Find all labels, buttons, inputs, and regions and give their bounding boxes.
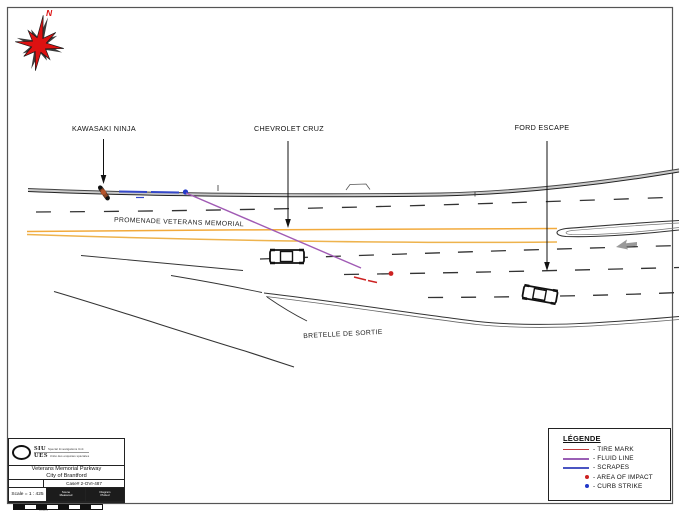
chevrolet-label: CHEVROLET CRUZ — [254, 124, 324, 133]
lane-dash-row-lower — [344, 268, 679, 275]
compass-north-label: N — [46, 8, 53, 18]
org-abbr-ues: UES — [34, 453, 48, 458]
title-city-name: City of Brantford — [9, 473, 124, 480]
measured-cell: Scene Measured — [47, 488, 86, 501]
org-sub-fr: Unité des enquêtes spéciales — [50, 454, 89, 459]
legend-box: LÉGENDE - TIRE MARK - FLUID LINE - SCRAP… — [548, 428, 671, 501]
top-curb-upper-line — [28, 169, 679, 194]
pavement-merge-arrow-icon — [616, 240, 637, 250]
title-block: SIU Special Investigations Unit UES Unit… — [8, 438, 125, 503]
chevrolet-cruz-vehicle — [270, 250, 304, 263]
legend-item-fluid-line: - FLUID LINE — [563, 454, 670, 463]
ramp-left-edge-curve — [54, 292, 294, 368]
gore-edge-line-middle — [171, 276, 262, 293]
ford-escape-vehicle — [522, 285, 558, 304]
org-sub-en: Special Investigations Unit — [48, 447, 84, 452]
scrapes-line-icon — [563, 467, 593, 469]
legend-item-tire-mark: - TIRE MARK — [563, 445, 670, 454]
scale-text: Scale = 1 : 425 — [9, 488, 47, 501]
chevrolet-leader-arrow — [285, 141, 291, 228]
title-road-city: Veterans Memorial Parkway City of Brantf… — [9, 466, 124, 480]
legend-item-area-of-impact: - AREA OF IMPACT — [563, 473, 670, 482]
promenade-road-label: PROMENADE VETERANS MEMORIAL — [114, 217, 244, 229]
curb-strike-dot-icon — [563, 484, 593, 488]
legend-item-scrapes: - SCRAPES — [563, 463, 670, 472]
compass-star — [15, 15, 64, 70]
area-of-impact-dot-icon — [563, 475, 593, 479]
scale-bar — [13, 504, 103, 510]
case-number: Case# 2-OVI-487 — [44, 481, 124, 486]
lane-dash-row-top — [36, 197, 679, 212]
title-block-logo-row: SIU Special Investigations Unit UES Unit… — [9, 439, 124, 466]
ford-leader-arrow — [544, 141, 550, 271]
compass-rose — [12, 13, 68, 74]
bretelle-road-label: BRETELLE DE SORTIE — [303, 329, 383, 340]
curb-bump-line — [346, 184, 370, 190]
fluid-line-icon — [563, 458, 593, 460]
tire-mark-line-icon — [563, 449, 593, 451]
plotted-cell: Diagram Plotted — [86, 488, 124, 501]
legend-title: LÉGENDE — [563, 434, 670, 443]
title-case-row: Case# 2-OVI-487 — [9, 480, 124, 488]
collision-diagram-page: KAWASAKI NINJA CHEVROLET CRUZ FORD ESCAP… — [0, 0, 680, 511]
kawasaki-leader-arrow — [101, 139, 107, 184]
tire-mark-line — [354, 277, 377, 283]
siu-logo-icon — [12, 445, 31, 460]
legend-item-curb-strike: - CURB STRIKE — [563, 482, 670, 491]
scale-bar-row: metres — [9, 502, 124, 511]
kawasaki-label: KAWASAKI NINJA — [72, 124, 136, 133]
yellow-line-upper — [27, 228, 557, 231]
median-island-outline — [557, 221, 679, 237]
ford-label: FORD ESCAPE — [515, 123, 570, 132]
org-abbr-siu: SIU — [34, 446, 46, 451]
case-row-spacer — [9, 480, 44, 487]
title-info-cells: Scale = 1 : 425 Scene Measured Diagram P… — [9, 488, 124, 502]
gore-edge-line-upper — [81, 256, 243, 271]
area-of-impact-dot — [389, 271, 394, 276]
